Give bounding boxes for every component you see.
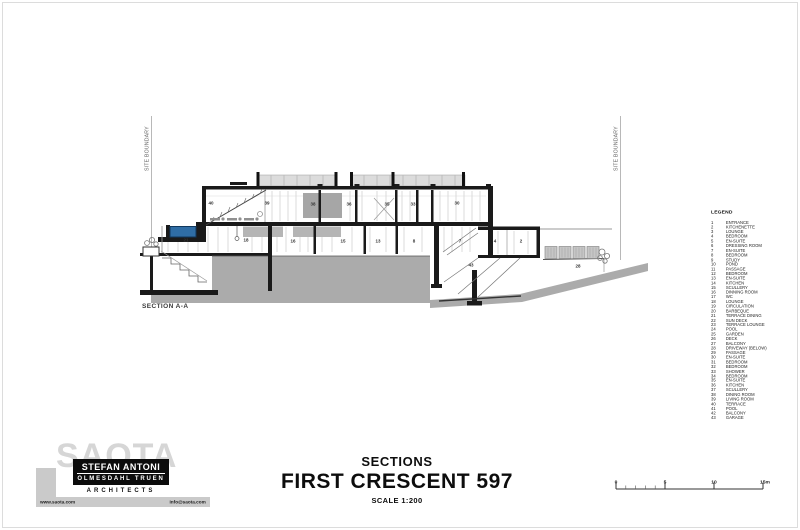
room-number-40: 40 xyxy=(208,201,213,206)
terrace-furniture xyxy=(210,212,263,221)
stair-ramp-diagonals xyxy=(443,228,520,297)
sheet-title: FIRST CRESCENT 597 xyxy=(257,470,537,494)
room-number-13: 13 xyxy=(375,239,380,244)
room-number-4: 4 xyxy=(494,239,497,244)
lower-glazing-lines xyxy=(168,227,528,254)
room-number-21: 21 xyxy=(183,238,188,243)
scale-bar-label-5: 5 xyxy=(664,479,667,485)
gray-block-38 xyxy=(303,193,342,218)
section-label: SECTION A-A xyxy=(142,303,188,310)
pendant-light xyxy=(235,226,239,241)
legend-item-43: 43GARAGE xyxy=(711,416,799,421)
planter xyxy=(143,237,159,256)
logo-architects-label: ARCHITECTS xyxy=(73,488,169,494)
logo-name-line2: OLMESDAHL TRUEN xyxy=(73,476,169,482)
pool xyxy=(170,227,196,238)
scale-bar-label-10: 10 xyxy=(711,479,717,485)
room-number-16: 16 xyxy=(290,239,295,244)
title-block: SECTIONS FIRST CRESCENT 597 SCALE 1:200 xyxy=(257,454,537,505)
room-number-7: 7 xyxy=(459,239,462,244)
legend: LEGEND 1ENTRANCE2KITCHENETTE3LOUNGE4BEDR… xyxy=(711,209,799,420)
scale-bar xyxy=(616,483,763,490)
room-number-35: 35 xyxy=(384,202,389,207)
architect-logo-box: STEFAN ANTONI OLMESDAHL TRUEN xyxy=(73,459,169,485)
sheet-scale: SCALE 1:200 xyxy=(257,496,537,505)
shrub xyxy=(598,249,610,263)
room-number-28: 28 xyxy=(575,264,580,269)
scale-bar-label-15m: 15m xyxy=(760,479,770,485)
room-number-15: 15 xyxy=(340,239,345,244)
scale-bar-label-0: 0 xyxy=(615,479,618,485)
room-number-39: 39 xyxy=(264,201,269,206)
ground xyxy=(151,256,648,308)
room-number-38: 38 xyxy=(310,202,315,207)
logo-website: www.saota.com xyxy=(40,499,75,504)
logo-contact-bar: www.saota.com info@saota.com xyxy=(36,497,210,507)
room-number-30: 30 xyxy=(454,201,459,206)
legend-heading: LEGEND xyxy=(711,209,799,215)
drawing-sheet: SITE BOUNDARY SITE BOUNDARY SECTION A-A … xyxy=(0,0,800,530)
room-number-33: 33 xyxy=(410,202,415,207)
room-number-2: 2 xyxy=(520,239,523,244)
legend-list: 1ENTRANCE2KITCHENETTE3LOUNGE4BEDROOM5EN-… xyxy=(711,221,799,421)
logo-name-line1: STEFAN ANTONI xyxy=(77,462,165,474)
sheet-subtitle: SECTIONS xyxy=(257,454,537,469)
room-number-43: 43 xyxy=(468,263,473,268)
site-boundary-label-right: SITE BOUNDARY xyxy=(613,126,619,171)
room-number-36: 36 xyxy=(346,202,351,207)
lower-bulkheads xyxy=(243,227,341,238)
logo-email: info@saota.com xyxy=(170,499,206,504)
room-number-18: 18 xyxy=(243,238,248,243)
site-boundary-label-left: SITE BOUNDARY xyxy=(144,126,150,171)
room-number-8: 8 xyxy=(413,239,416,244)
